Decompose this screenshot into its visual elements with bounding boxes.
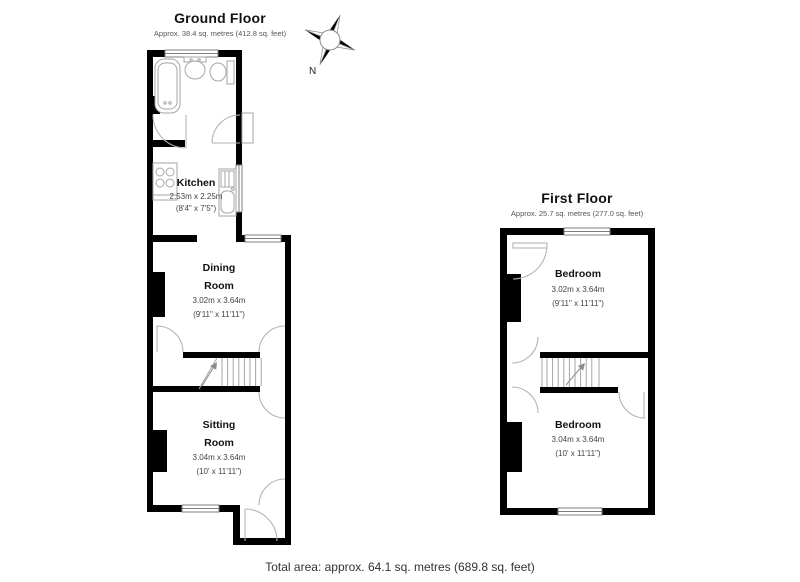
- front-door: [245, 509, 277, 541]
- sitting-chimney-breast: [153, 430, 167, 472]
- dining-dims-metric: 3.02m x 3.64m: [193, 296, 246, 305]
- ground-floor-title: Ground Floor: [130, 10, 310, 26]
- ground-stairs: [199, 358, 261, 389]
- sitting-label-line2: Room: [204, 437, 234, 449]
- toilet-icon: [210, 61, 234, 84]
- bedroom-front-closet-door: [513, 243, 547, 279]
- first-floor-header: First Floor Approx. 25.7 sq. metres (277…: [487, 190, 667, 218]
- bedroom-front-dims-metric: 3.02m x 3.64m: [552, 285, 605, 294]
- hall-door: [259, 479, 285, 505]
- sitting-dims-metric: 3.04m x 3.64m: [193, 453, 246, 462]
- compass-star-icon: [295, 8, 365, 75]
- landing-door-lower: [512, 387, 538, 413]
- sitting-label-line1: Sitting: [203, 419, 236, 431]
- kitchen-dims-imperial: (8'4" x 7'5"): [176, 204, 217, 213]
- sitting-dims-imperial: (10' x 11'11"): [196, 467, 242, 476]
- dining-chimney-breast: [153, 272, 165, 317]
- compass-north-label: N: [309, 66, 316, 77]
- ground-floor-subtitle: Approx. 38.4 sq. metres (412.8 sq. feet): [130, 29, 310, 38]
- total-area-text: Total area: approx. 64.1 sq. metres (689…: [0, 560, 800, 574]
- bedroom-back-door: [619, 392, 645, 418]
- sitting-door: [259, 392, 285, 418]
- bedroom-back-dims-imperial: (10' x 11'11"): [555, 449, 601, 458]
- bedroom-back-label: Bedroom: [555, 419, 601, 431]
- dining-label-line1: Dining: [203, 262, 236, 274]
- kitchen-dims-metric: 2.53m x 2.25m: [170, 192, 223, 201]
- dining-label-line2: Room: [204, 280, 234, 292]
- bedroom-front-dims-imperial: (9'11" x 11'11"): [552, 299, 604, 308]
- dining-door-right: [259, 326, 285, 352]
- first-floor-title: First Floor: [487, 190, 667, 206]
- kitchen-label: Kitchen: [177, 177, 216, 189]
- basin-icon: [184, 57, 206, 79]
- floorplan-page: Ground Floor Approx. 38.4 sq. metres (41…: [0, 0, 800, 582]
- first-floor-plan: Bedroom 3.02m x 3.64m (9'11" x 11'11") B…: [498, 225, 658, 520]
- bedroom-front-chimney-breast: [507, 274, 521, 322]
- landing-door-upper: [512, 337, 538, 363]
- bedroom-back-dims-metric: 3.04m x 3.64m: [552, 435, 605, 444]
- rear-door: [212, 115, 240, 143]
- dining-door-left: [157, 326, 183, 352]
- bedroom-front-label: Bedroom: [555, 268, 601, 280]
- rear-door-step: [242, 113, 253, 143]
- bedroom-back-chimney-breast: [507, 422, 522, 472]
- ground-floor-header: Ground Floor Approx. 38.4 sq. metres (41…: [130, 10, 310, 38]
- first-stairs: [542, 358, 599, 387]
- dining-dims-imperial: (9'11" x 11'11"): [193, 310, 245, 319]
- first-floor-subtitle: Approx. 25.7 sq. metres (277.0 sq. feet): [487, 209, 667, 218]
- compass-rose: N: [294, 8, 366, 80]
- bathtub-icon: [155, 59, 180, 113]
- ground-floor-plan: Kitchen 2.53m x 2.25m (8'4" x 7'5") Dini…: [145, 45, 295, 550]
